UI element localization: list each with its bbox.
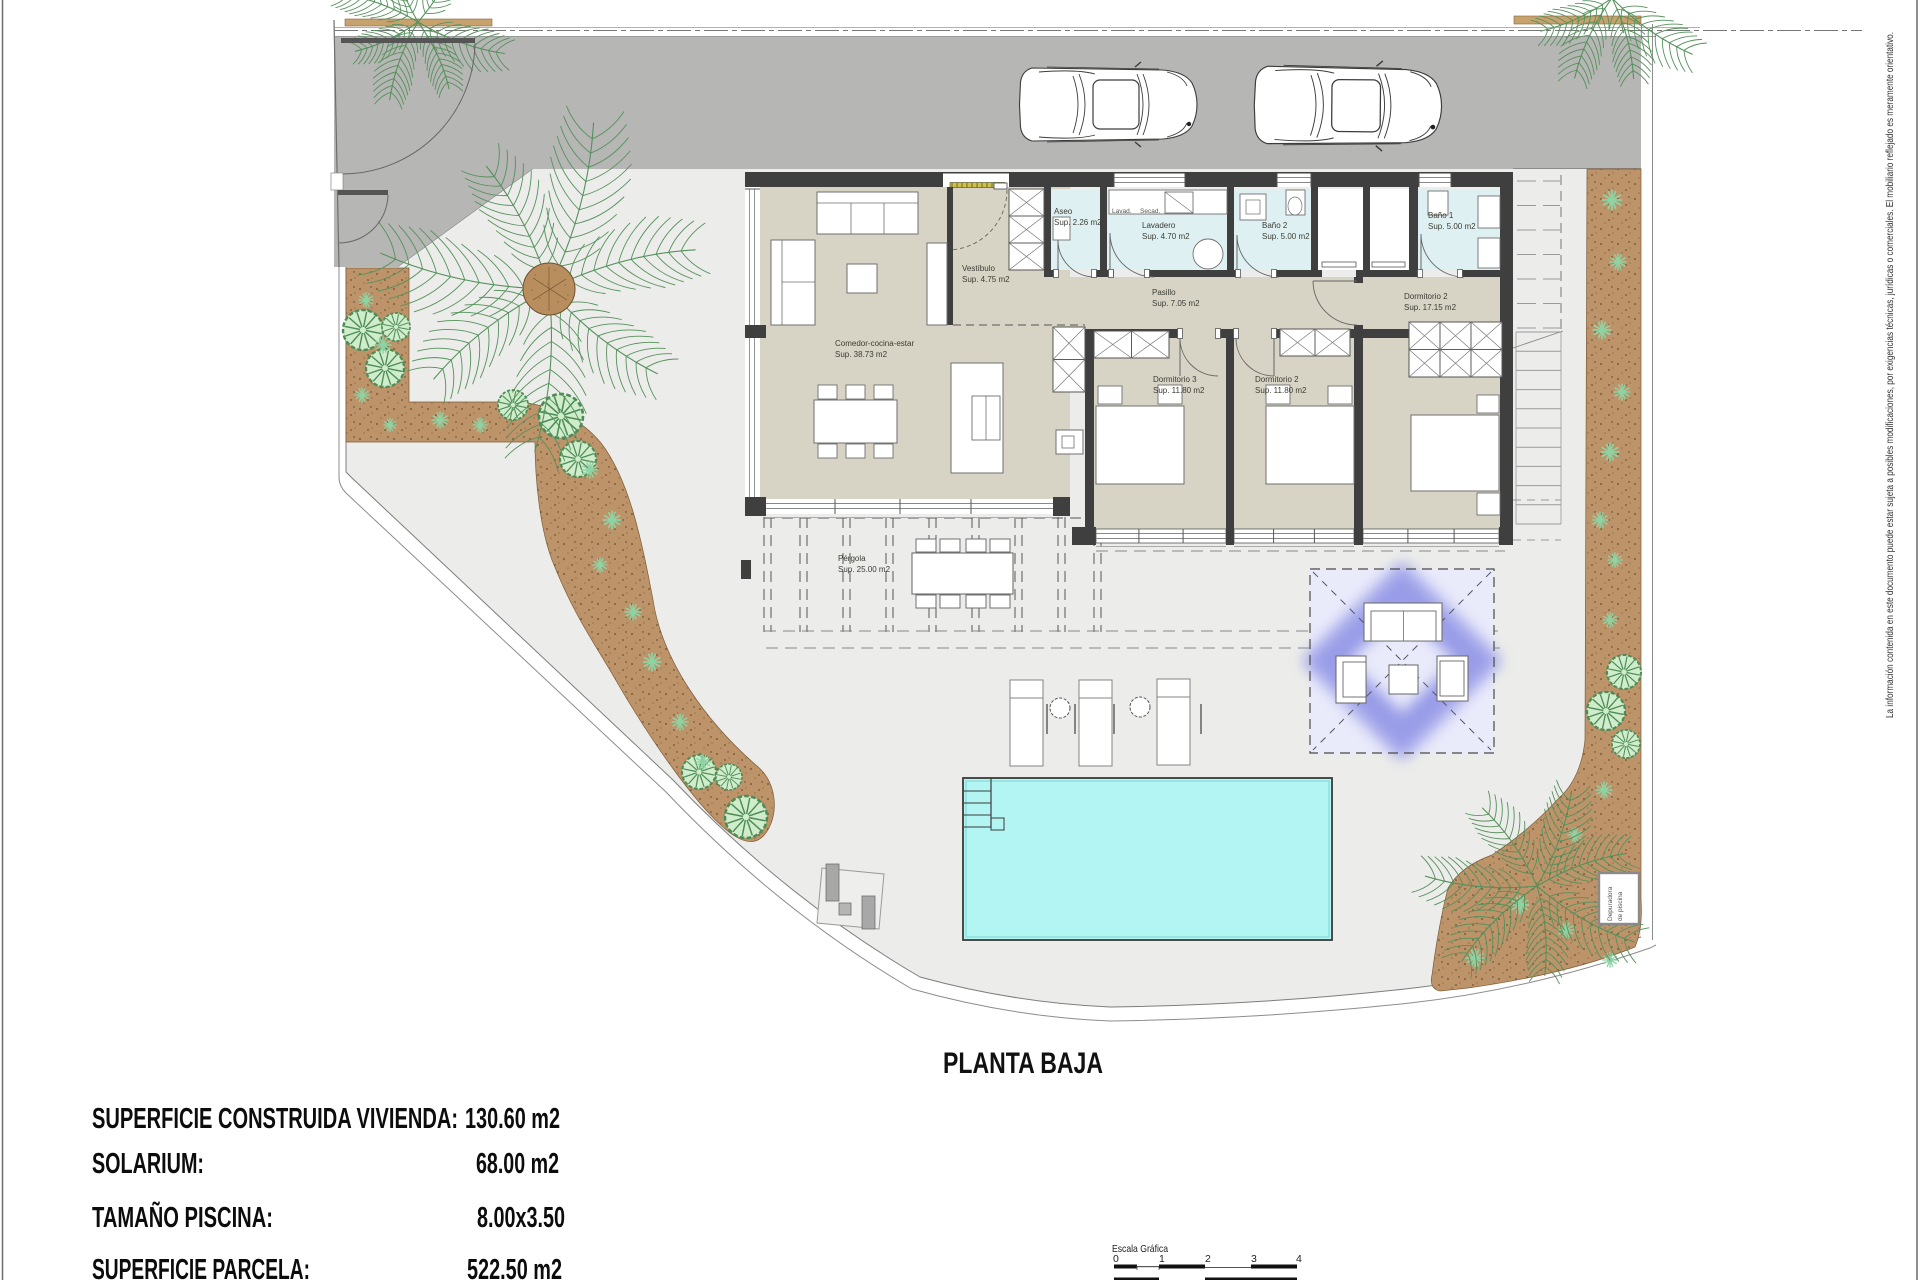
svg-text:4: 4 — [1296, 1253, 1302, 1265]
svg-text:522.50 m2: 522.50 m2 — [467, 1254, 562, 1280]
svg-text:Sup. 5.00 m2: Sup. 5.00 m2 — [1428, 222, 1476, 231]
svg-text:Baño 1: Baño 1 — [1428, 211, 1454, 220]
svg-text:Aseo: Aseo — [1054, 207, 1073, 216]
svg-text:Secad.: Secad. — [1140, 208, 1160, 215]
svg-text:Sup. 7.05 m2: Sup. 7.05 m2 — [1152, 299, 1200, 308]
svg-text:Sup. 11.80 m2: Sup. 11.80 m2 — [1255, 386, 1307, 395]
svg-text:Pérgola: Pérgola — [838, 554, 866, 563]
svg-text:Dormitorio 3: Dormitorio 3 — [1153, 375, 1197, 384]
svg-text:Dormitorio 2: Dormitorio 2 — [1404, 292, 1448, 301]
svg-text:3: 3 — [1251, 1253, 1257, 1265]
svg-text:SUPERFICIE PARCELA:: SUPERFICIE PARCELA: — [92, 1254, 310, 1280]
svg-text:Sup. 11.80 m2: Sup. 11.80 m2 — [1153, 386, 1205, 395]
svg-text:de piscina: de piscina — [1617, 891, 1624, 921]
svg-text:0: 0 — [1113, 1253, 1119, 1265]
svg-text:Sup. 4.75 m2: Sup. 4.75 m2 — [962, 275, 1010, 284]
svg-text:Depuradora: Depuradora — [1607, 886, 1614, 921]
svg-text:130.60 m2: 130.60 m2 — [465, 1103, 560, 1135]
svg-text:SUPERFICIE CONSTRUIDA VIVIENDA: SUPERFICIE CONSTRUIDA VIVIENDA: — [92, 1103, 458, 1135]
svg-text:Sup. 38.73 m2: Sup. 38.73 m2 — [835, 350, 888, 359]
svg-text:68.00 m2: 68.00 m2 — [476, 1148, 559, 1180]
svg-text:Dormitorio 2: Dormitorio 2 — [1255, 375, 1299, 384]
svg-text:Baño 2: Baño 2 — [1262, 221, 1288, 230]
svg-text:Vestíbulo: Vestíbulo — [962, 264, 995, 273]
svg-text:Sup. 5.00 m2: Sup. 5.00 m2 — [1262, 232, 1310, 241]
svg-text:La información contenida en es: La información contenida en este documen… — [1884, 32, 1896, 718]
svg-text:SOLARIUM:: SOLARIUM: — [92, 1148, 204, 1180]
svg-text:Sup. 25.00 m2: Sup. 25.00 m2 — [838, 565, 891, 574]
svg-text:Pasillo: Pasillo — [1152, 288, 1176, 297]
svg-text:Sup. 2.26 m2: Sup. 2.26 m2 — [1054, 218, 1102, 227]
svg-text:1: 1 — [1159, 1253, 1165, 1265]
svg-text:Sup. 17.15 m2: Sup. 17.15 m2 — [1404, 303, 1457, 312]
svg-text:PLANTA BAJA: PLANTA BAJA — [943, 1047, 1103, 1080]
svg-text:TAMAÑO PISCINA:: TAMAÑO PISCINA: — [92, 1200, 273, 1234]
svg-text:Sup. 4.70 m2: Sup. 4.70 m2 — [1142, 232, 1190, 241]
svg-text:Comedor-cocina-estar: Comedor-cocina-estar — [835, 339, 914, 348]
svg-text:Lavad.: Lavad. — [1112, 208, 1132, 215]
svg-text:Lavadero: Lavadero — [1142, 221, 1176, 230]
svg-text:2: 2 — [1205, 1253, 1211, 1265]
svg-text:8.00x3.50: 8.00x3.50 — [477, 1202, 565, 1234]
